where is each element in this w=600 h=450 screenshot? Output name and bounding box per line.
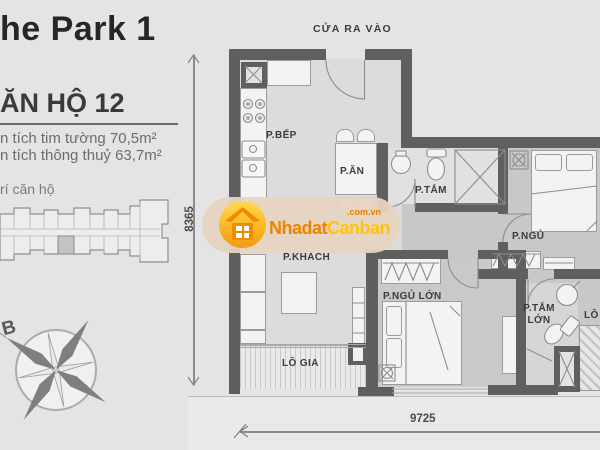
dimension-value-horizontal: 9725: [410, 413, 436, 425]
brand-part-primary: Nhadat: [269, 218, 327, 238]
ceiling-unit-icon: [510, 151, 528, 169]
room-label-bedroom: P.NGỦ: [512, 231, 544, 242]
room-label-loggia-right: LÔ: [584, 310, 599, 321]
house-body: [232, 223, 253, 240]
column-x-mark: [559, 351, 575, 387]
building-key-plan: [0, 198, 172, 270]
floor-plan-page: 8365 9725 CỬA RA VÀO P.BẾP P.ĂN P.TẮM P.…: [0, 0, 600, 450]
toilet: [427, 149, 446, 180]
washbasin: [392, 151, 411, 174]
house-window: [236, 226, 249, 238]
brand-house-icon: [219, 201, 266, 248]
watermark-brand-text: NhadatCanban: [269, 218, 390, 239]
entry-door-arc: [326, 60, 365, 99]
area-net-text: n tích thông thuỷ 63,7m²: [0, 147, 162, 164]
house-roof: [225, 207, 260, 222]
washbasin-master: [557, 281, 581, 306]
highlighted-unit: [58, 236, 74, 254]
master-bathroom-door-arc: [528, 279, 554, 305]
brand-part-secondary: Canban: [327, 218, 390, 238]
dimension-value-vertical: 8365: [184, 190, 198, 248]
room-label-bathroom: P.TẮM: [415, 185, 447, 196]
room-label-dining: P.ĂN: [340, 166, 364, 177]
dimension-line-horizontal: [240, 431, 600, 433]
wardrobe-hangers-master: [383, 263, 439, 280]
room-label-kitchen: P.BẾP: [266, 130, 297, 141]
unit-title: ĂN HỘ 12: [0, 88, 125, 119]
unit-position-caption: rí căn hộ: [0, 181, 54, 197]
room-label-master-bedroom: P.NGỦ LỚN: [383, 291, 442, 302]
tv-cabinet-dividers: [352, 303, 365, 333]
entrance-label: CỬA RA VÀO: [313, 23, 392, 35]
kitchen-sink: [242, 141, 265, 177]
loggia-sliding-door: [240, 345, 366, 348]
ceiling-unit-icon: [379, 365, 395, 381]
window-master-bottom: [392, 389, 488, 393]
window-mullion: [242, 226, 244, 238]
room-label-master-bathroom: P.TẮM LỚN: [518, 303, 560, 326]
watermark-domain-text: .com.vn: [347, 207, 381, 217]
room-label-loggia: LÔ GIA: [282, 358, 319, 369]
master-bedroom-door-arc: [448, 258, 478, 288]
title-divider: [0, 123, 178, 125]
stove-burners: [244, 100, 265, 123]
bathroom-door-arc: [388, 179, 415, 207]
project-title: he Park 1: [0, 10, 156, 49]
shower-area: [455, 150, 505, 204]
compass-rose: B: [2, 312, 112, 424]
shower-screen-master: [527, 349, 552, 361]
column-x-mark: [245, 66, 262, 83]
area-gross-text: n tích tim tường 70,5m²: [0, 130, 157, 147]
wardrobe-hangers-bedroom: [492, 254, 540, 266]
room-label-living: P.KHÁCH: [283, 252, 330, 263]
compass-north-label: B: [0, 316, 18, 340]
